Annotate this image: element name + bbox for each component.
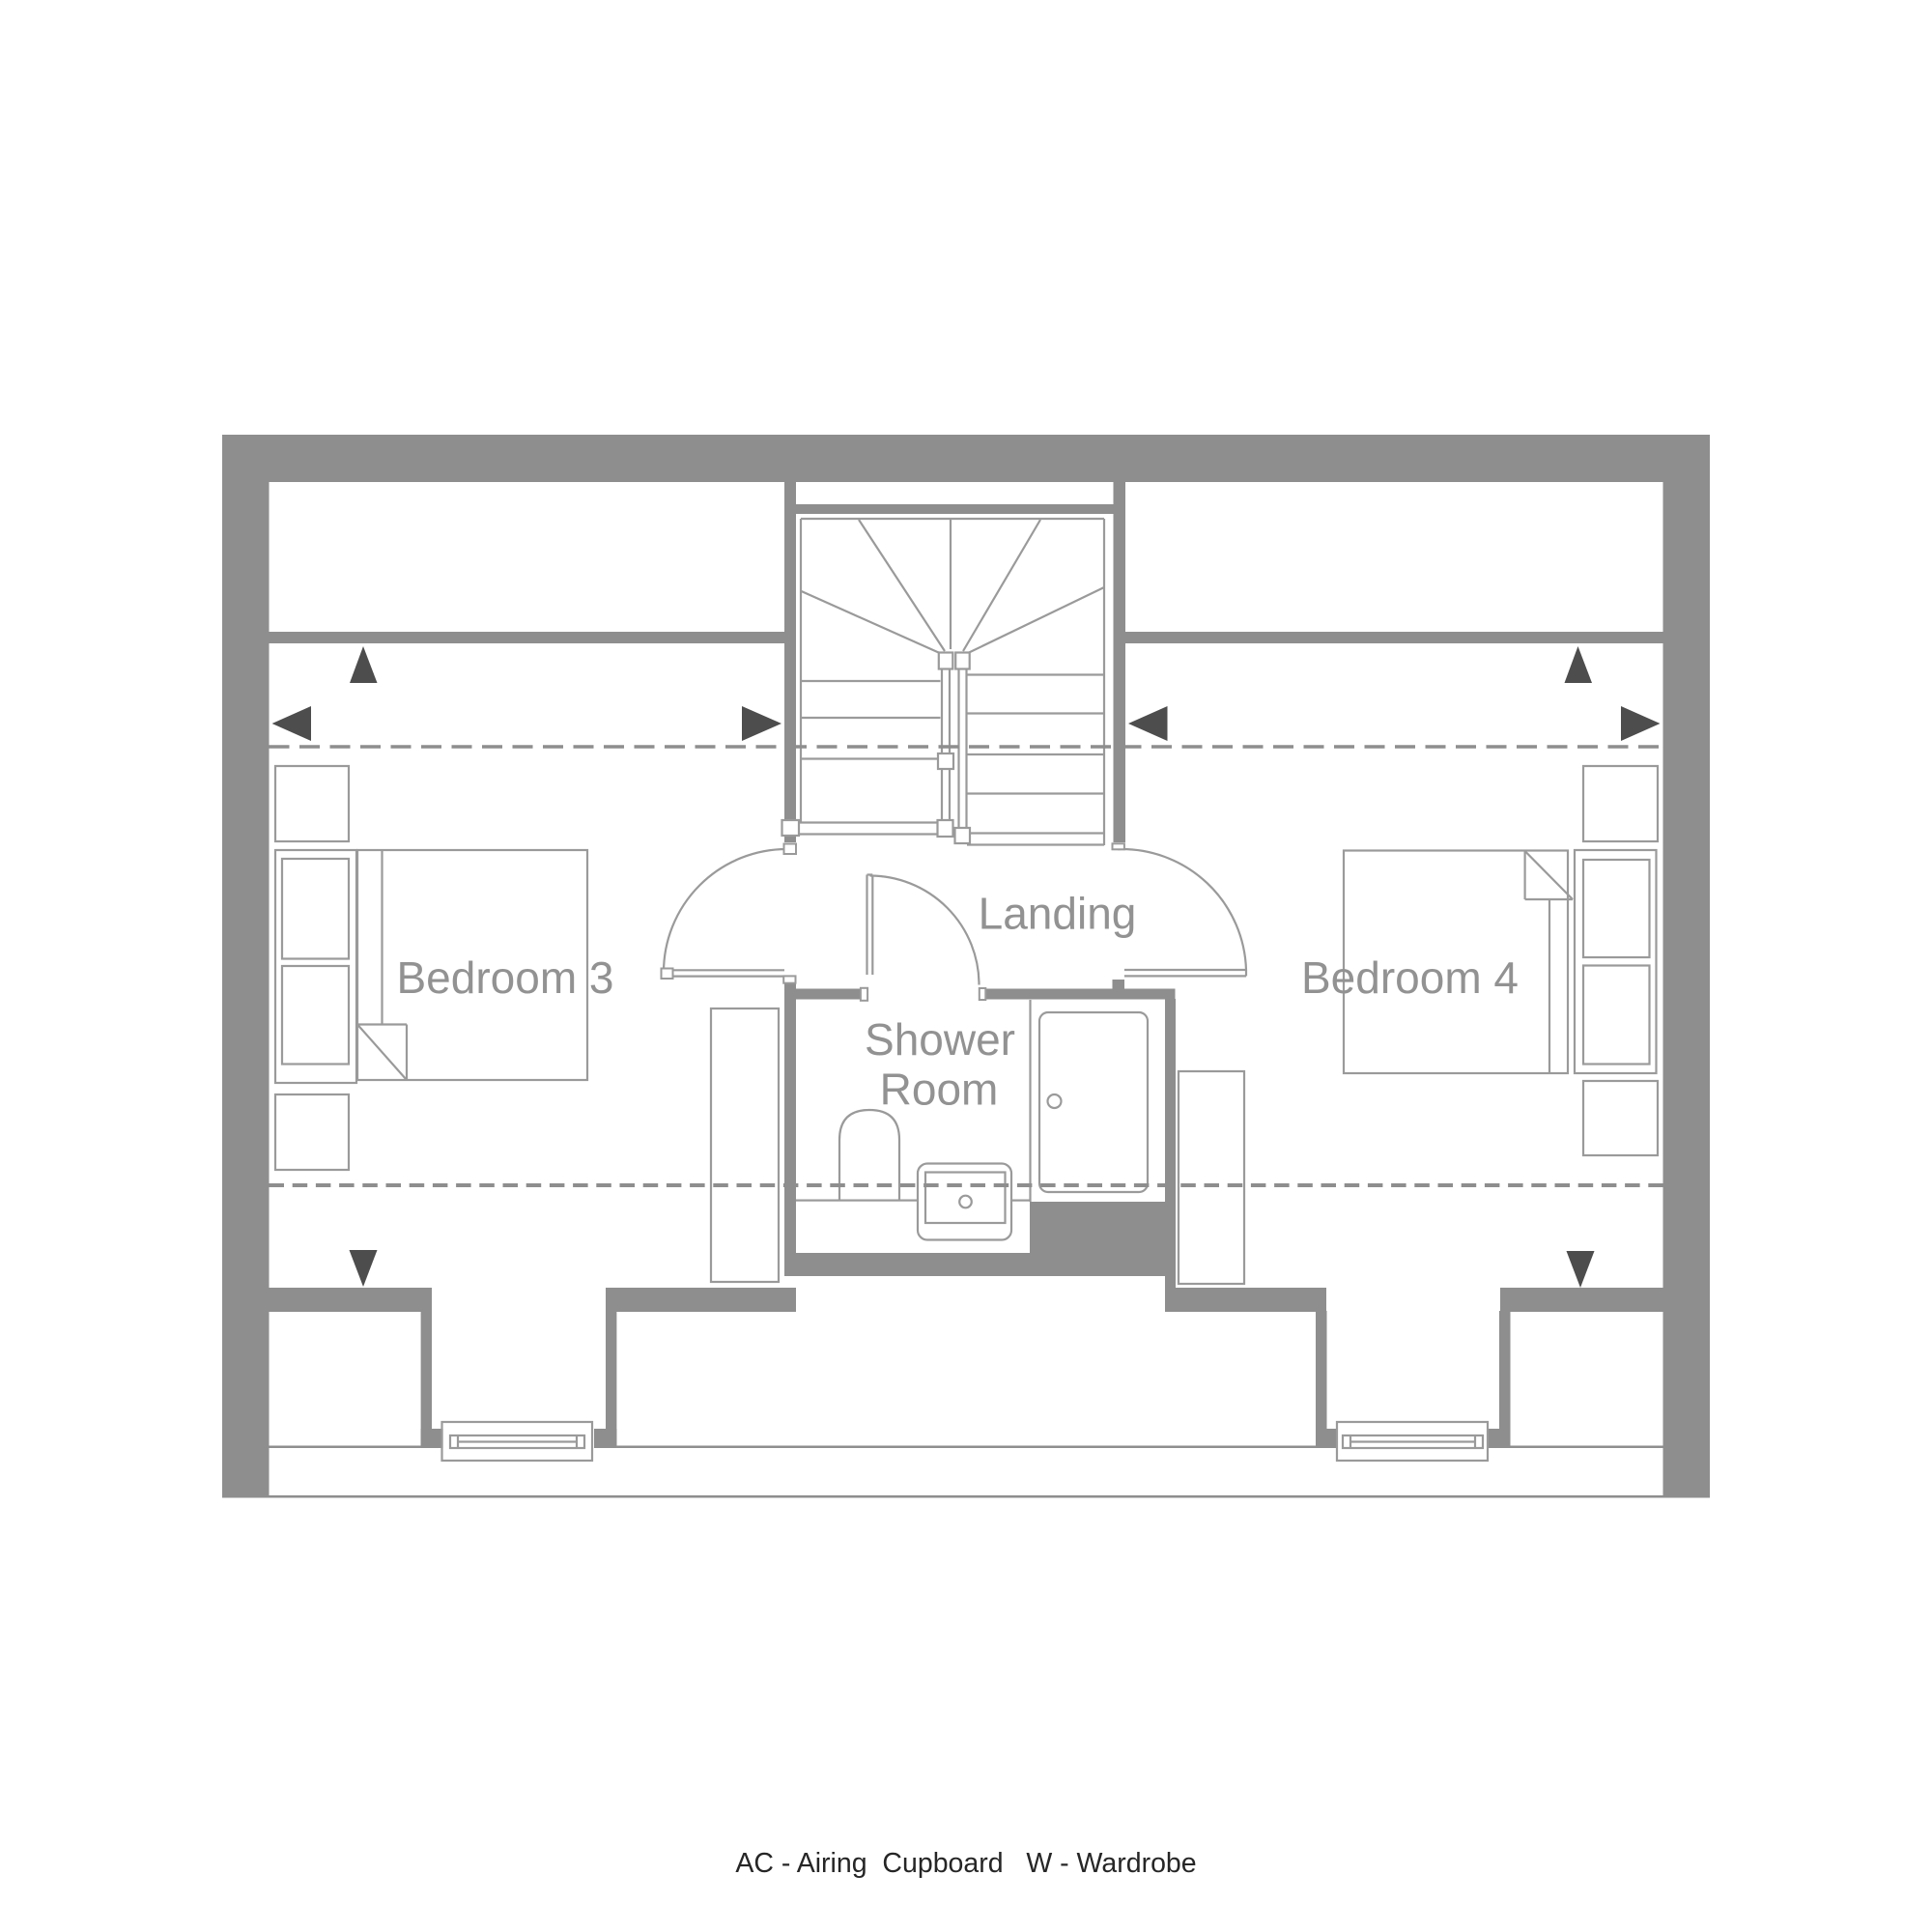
svg-text:Bedroom 4: Bedroom 4 <box>1301 952 1519 1003</box>
svg-text:AC - Airing Cupboard W - Wa: AC - Airing Cupboard W - Wardrobe <box>735 1848 1196 1879</box>
svg-text:Room: Room <box>880 1065 999 1115</box>
svg-text:Bedroom 3: Bedroom 3 <box>396 952 613 1003</box>
svg-text:Landing: Landing <box>979 889 1137 939</box>
svg-text:Shower: Shower <box>865 1014 1015 1065</box>
